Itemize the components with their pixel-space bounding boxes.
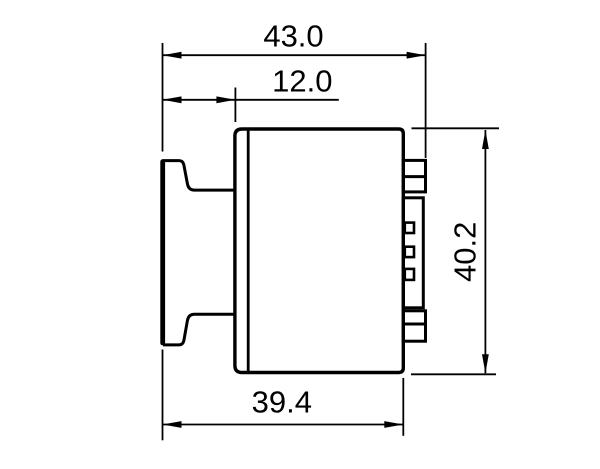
svg-text:40.2: 40.2: [448, 222, 483, 282]
svg-text:39.4: 39.4: [252, 385, 312, 420]
svg-text:12.0: 12.0: [272, 64, 332, 99]
svg-text:43.0: 43.0: [263, 19, 323, 54]
